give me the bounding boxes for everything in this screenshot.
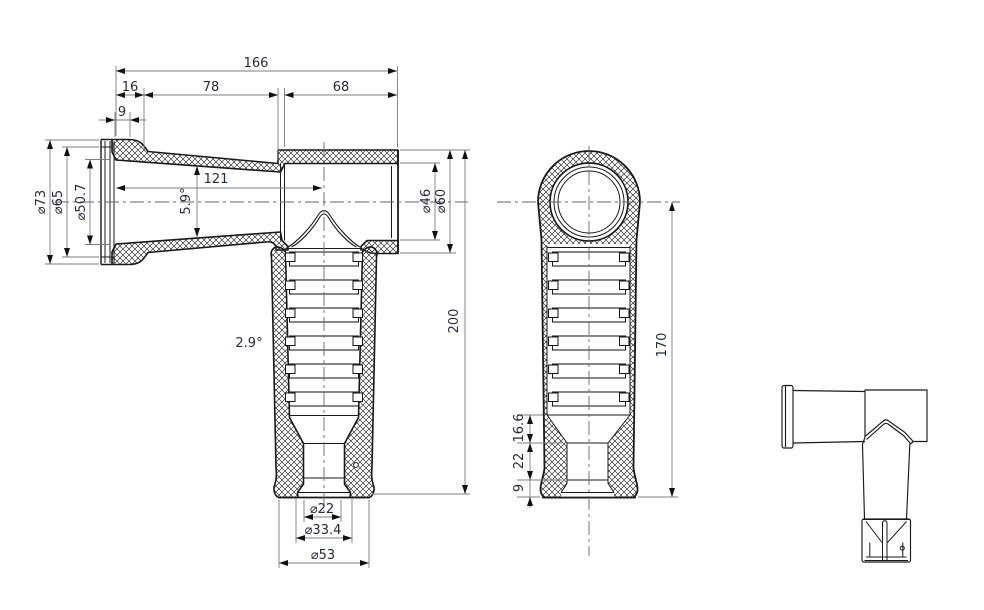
dim-bore-taper-angle: 5.9° (179, 187, 194, 214)
dim-overall-height: 200 (447, 309, 462, 334)
dim-lip-length: 16 (122, 80, 139, 95)
outline-tube (793, 391, 865, 444)
drawing-canvas: 166 16 78 68 9 121 2.9° ⌀22 ⌀33.4 ⌀53 ⌀7… (0, 0, 984, 610)
dim-taper-length: 78 (203, 80, 220, 95)
front-section-view (101, 140, 398, 498)
dim-funnel-height: 16.6 (512, 414, 527, 443)
dim-tip-height: 22 (512, 453, 527, 470)
dim-socket-od: ⌀60 (434, 189, 449, 213)
outline-side-view (782, 386, 927, 563)
outline-flange (782, 386, 793, 449)
outline-body-block (865, 390, 927, 442)
dim-side-height: 170 (655, 333, 670, 358)
dim-socket-length: 68 (333, 80, 350, 95)
dim-bore-depth: 121 (204, 172, 229, 187)
dim-tip-bore: ⌀22 (310, 502, 334, 517)
outline-lower-body (863, 437, 914, 519)
dim-overall-length: 166 (244, 56, 269, 71)
dim-leg-taper-angle: 2.9° (235, 336, 262, 351)
dim-socket-id: ⌀46 (419, 189, 434, 213)
dim-bore-id: ⌀50.7 (74, 184, 89, 221)
dim-base-height: 9 (512, 484, 527, 492)
dim-flange-od: ⌀73 (34, 190, 49, 214)
top-wall-section (112, 140, 398, 173)
dim-lip-od: ⌀65 (51, 190, 66, 214)
outline-roof (865, 420, 913, 444)
dim-base-od: ⌀53 (311, 548, 335, 563)
vent-hole (354, 463, 359, 468)
outline-base-details (863, 520, 911, 561)
technical-drawing: 166 16 78 68 9 121 2.9° ⌀22 ⌀33.4 ⌀53 ⌀7… (0, 0, 984, 610)
dim-lip-width: 9 (118, 105, 126, 120)
bottom-wall-section (112, 232, 288, 265)
dim-tip-mid-od: ⌀33.4 (305, 523, 342, 538)
